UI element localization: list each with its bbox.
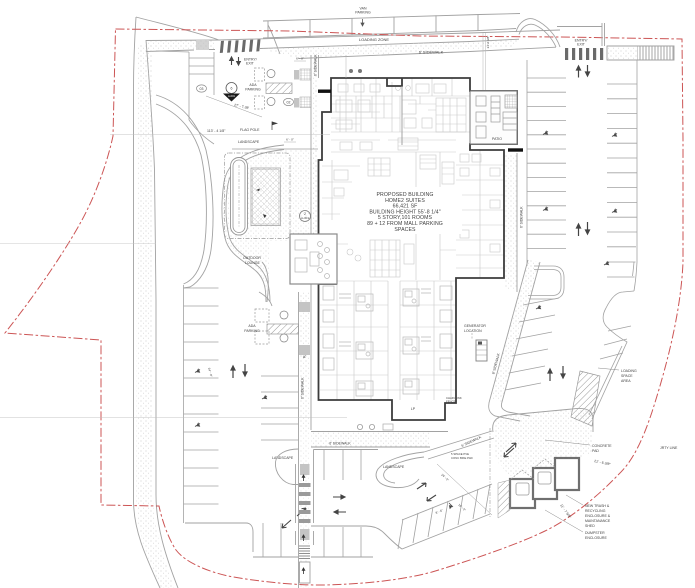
svg-text:FENCE: FENCE [446,400,456,404]
svg-text:6' SIDEWALK: 6' SIDEWALK [301,377,305,399]
svg-text:CONC BIKE PAD: CONC BIKE PAD [451,456,473,460]
svg-text:PAD: PAD [592,449,599,453]
svg-text:DUMPSTER: DUMPSTER [585,531,605,535]
svg-text:LANDSCAPE: LANDSCAPE [383,465,405,469]
svg-text:PARKING: PARKING [355,11,371,15]
svg-text:LOCATION: LOCATION [464,329,482,333]
svg-text:ADA: ADA [249,83,257,87]
svg-text:24'-0 3/8": 24'-0 3/8" [486,36,490,49]
svg-text:A-001: A-001 [228,94,235,98]
svg-text:02: 02 [287,101,291,105]
svg-text:PARKING: PARKING [245,88,261,92]
svg-text:OUTDOOR: OUTDOOR [243,256,261,260]
svg-text:6' - 0": 6' - 0" [296,57,304,61]
svg-text:LOADING ZONE: LOADING ZONE [359,37,390,42]
svg-text:6' SIDEWALK: 6' SIDEWALK [314,54,318,76]
svg-text:LOADING: LOADING [621,369,637,373]
svg-text:AREA: AREA [621,379,631,383]
svg-text:6' SIDEWALK: 6' SIDEWALK [329,442,351,446]
svg-text:LOUNGE: LOUNGE [245,261,260,265]
svg-text:ENCLOSURE: ENCLOSURE [585,536,607,540]
svg-text:03: 03 [200,87,204,91]
svg-text:PARKING: PARKING [244,329,260,333]
svg-text:6' SIDEWALK: 6' SIDEWALK [419,50,444,55]
svg-text:EXIT: EXIT [246,62,255,66]
svg-text:113' - 4 1/8": 113' - 4 1/8" [207,129,226,133]
svg-text:NEW TRASH &: NEW TRASH & [585,504,610,508]
svg-text:JRTY LINE: JRTY LINE [660,446,678,450]
svg-text:LANDSCAPE: LANDSCAPE [238,140,260,144]
svg-text:PATIO: PATIO [492,137,502,141]
svg-text:SPACE: SPACE [621,374,633,378]
svg-text:CONCRETE: CONCRETE [592,444,612,448]
svg-text:ENCLOSURE &: ENCLOSURE & [585,514,611,518]
svg-text:RECYCLING: RECYCLING [585,509,606,513]
svg-text:FLAG POLE: FLAG POLE [240,128,260,132]
svg-text:LP: LP [411,407,416,411]
svg-text:A-301: A-301 [301,216,309,220]
svg-text:MAINTANANCE: MAINTANANCE [585,519,611,523]
svg-text:6' - 0": 6' - 0" [286,138,294,142]
svg-text:6' SIDEWALK: 6' SIDEWALK [520,206,524,228]
svg-text:EXIT: EXIT [577,43,586,47]
svg-text:6: 6 [231,87,233,91]
svg-text:SHED: SHED [585,524,595,528]
svg-text:GENERATOR: GENERATOR [464,324,486,328]
svg-text:ADA: ADA [248,324,256,328]
svg-text:LANDSCAPE: LANDSCAPE [272,456,294,460]
svg-text:SPACES: SPACES [394,227,416,233]
